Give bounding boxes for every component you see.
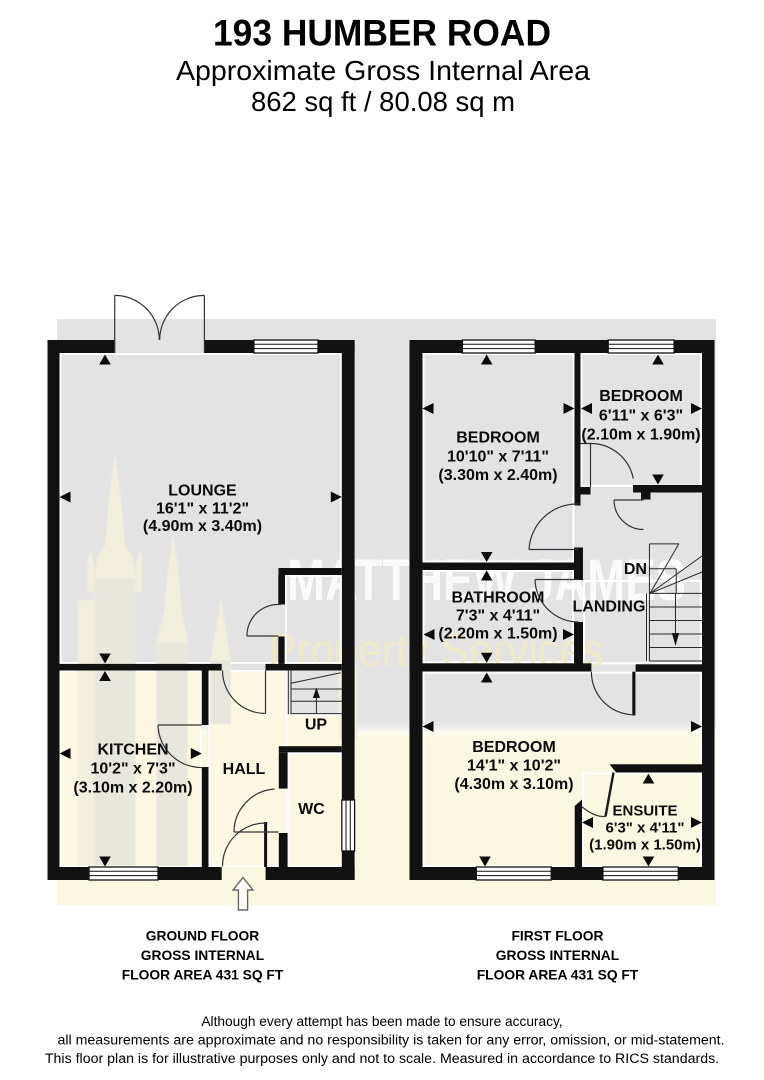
svg-text:BEDROOM: BEDROOM (456, 430, 540, 447)
svg-text:WC: WC (298, 801, 325, 818)
svg-text:(2.10m x 1.90m): (2.10m x 1.90m) (581, 427, 700, 444)
svg-text:7'3" x 4'11": 7'3" x 4'11" (456, 607, 540, 624)
svg-text:(4.30m x 3.10m): (4.30m x 3.10m) (454, 776, 573, 793)
svg-text:GROSS INTERNAL: GROSS INTERNAL (496, 948, 619, 963)
svg-text:(3.30m x 2.40m): (3.30m x 2.40m) (438, 467, 557, 484)
svg-text:16'1" x 11'2": 16'1" x 11'2" (156, 500, 249, 517)
svg-text:BEDROOM: BEDROOM (599, 388, 683, 405)
svg-text:193 HUMBER ROAD: 193 HUMBER ROAD (213, 13, 551, 54)
svg-text:(4.90m x 3.40m): (4.90m x 3.40m) (143, 518, 262, 535)
svg-text:Approximate Gross Internal Are: Approximate Gross Internal Area (176, 55, 590, 86)
svg-text:862 sq ft / 80.08 sq m: 862 sq ft / 80.08 sq m (251, 86, 515, 117)
svg-text:BATHROOM: BATHROOM (451, 590, 544, 607)
svg-text:FIRST FLOOR: FIRST FLOOR (512, 929, 604, 944)
svg-text:LANDING: LANDING (573, 598, 646, 615)
svg-text:ENSUITE: ENSUITE (612, 802, 677, 819)
svg-text:10'10" x 7'11": 10'10" x 7'11" (447, 448, 549, 465)
svg-text:UP: UP (305, 717, 328, 734)
svg-text:DN: DN (624, 561, 647, 578)
svg-text:HALL: HALL (223, 761, 266, 778)
svg-text:KITCHEN: KITCHEN (97, 741, 168, 758)
svg-text:Although every attempt has bee: Although every attempt has been made to … (201, 1014, 562, 1029)
svg-text:GROSS INTERNAL: GROSS INTERNAL (141, 948, 264, 963)
svg-text:all measurements are approxima: all measurements are approximate and no … (57, 1033, 724, 1049)
svg-text:(1.90m x 1.50m): (1.90m x 1.50m) (589, 836, 701, 853)
svg-text:6'11" x 6'3": 6'11" x 6'3" (599, 407, 683, 424)
svg-text:LOUNGE: LOUNGE (168, 483, 237, 500)
svg-text:BEDROOM: BEDROOM (472, 739, 556, 756)
svg-text:6'3" x 4'11": 6'3" x 4'11" (606, 819, 685, 836)
svg-text:10'2" x 7'3": 10'2" x 7'3" (90, 761, 175, 778)
svg-text:This floor plan is for illustr: This floor plan is for illustrative purp… (45, 1051, 719, 1067)
svg-text:(2.20m x 1.50m): (2.20m x 1.50m) (438, 626, 557, 643)
svg-text:GROUND FLOOR: GROUND FLOOR (146, 929, 259, 944)
svg-text:FLOOR AREA 431 SQ FT: FLOOR AREA 431 SQ FT (122, 967, 284, 982)
svg-text:(3.10m x 2.20m): (3.10m x 2.20m) (73, 780, 192, 797)
svg-text:14'1" x 10'2": 14'1" x 10'2" (467, 757, 561, 774)
svg-text:FLOOR AREA 431 SQ FT: FLOOR AREA 431 SQ FT (477, 967, 639, 982)
